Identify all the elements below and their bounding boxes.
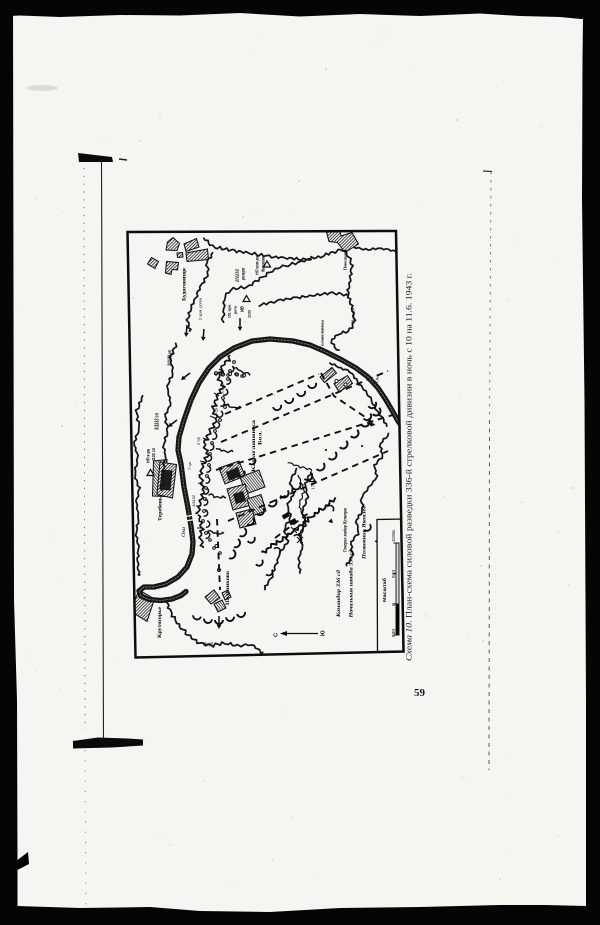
svg-text:дивизии: дивизии [261,257,266,272]
svg-text:2 арм. рота: 2 арм. рота [199,298,203,321]
svg-text:Карагашинка: Карагашинка [251,420,257,472]
svg-text:1000м: 1000м [391,530,396,542]
svg-text:2/1132: 2/1132 [235,268,240,283]
svg-text:500: 500 [391,569,396,578]
svg-text:НП к-ра: НП к-ра [146,448,151,463]
svg-text:С: С [274,633,280,637]
svg-text:Пополнево: Пополнево [343,250,348,270]
svg-text:5,6 ср: 5,6 ср [221,383,225,394]
svg-text:1/1132: 1/1132 [192,494,196,507]
svg-text:НП ком-ра: НП ком-ра [255,256,260,275]
svg-text:Крутогорье: Крутогорье [158,607,163,638]
svg-text:1132 сп: 1132 сп [151,448,156,461]
svg-text:Генерал-майор Кузнецов: Генерал-майор Кузнецов [343,507,349,553]
svg-text:Командир 336 сд: Командир 336 сд [337,569,342,618]
svg-text:Ю: Ю [321,630,327,636]
svg-text:Пальчиково: Пальчиково [226,570,231,605]
svg-text:Истья: Истья [351,308,356,325]
svg-text:ИВ: ИВ [240,306,245,312]
svg-text:4 ср: 4 ср [215,408,219,416]
svg-text:151 арм.: 151 арм. [228,304,232,318]
svg-text:Ока: Ока [182,526,187,537]
svg-text:рота: рота [234,305,238,314]
svg-text:Будоговищи: Будоговищи [182,268,188,301]
svg-text:Масштаб: Масштаб [381,578,388,602]
svg-text:1132: 1132 [248,310,252,318]
svg-text:Бол.: Бол. [258,430,264,445]
svg-text:Полковник Яковлев: Полковник Яковлев [363,505,368,560]
svg-text:Теребень: Теребень [159,496,164,521]
svg-text:Схема 10. План-схема силовой р: Схема 10. План-схема силовой разведки 33… [405,273,414,661]
svg-text:2/1132 сп: 2/1132 сп [168,350,174,367]
svg-text:3/1132 сп: 3/1132 сп [155,413,161,430]
svg-text:59: 59 [414,687,426,699]
svg-text:2 ср: 2 ср [197,437,201,446]
svg-text:500: 500 [391,628,396,637]
svg-text:Начальник штаба 336 сд: Начальник штаба 336 сд [350,549,355,619]
svg-text:7 ср: 7 ср [188,462,192,470]
svg-text:резерв: резерв [241,268,246,281]
svg-text:Головлинка: Головлинка [320,319,325,349]
